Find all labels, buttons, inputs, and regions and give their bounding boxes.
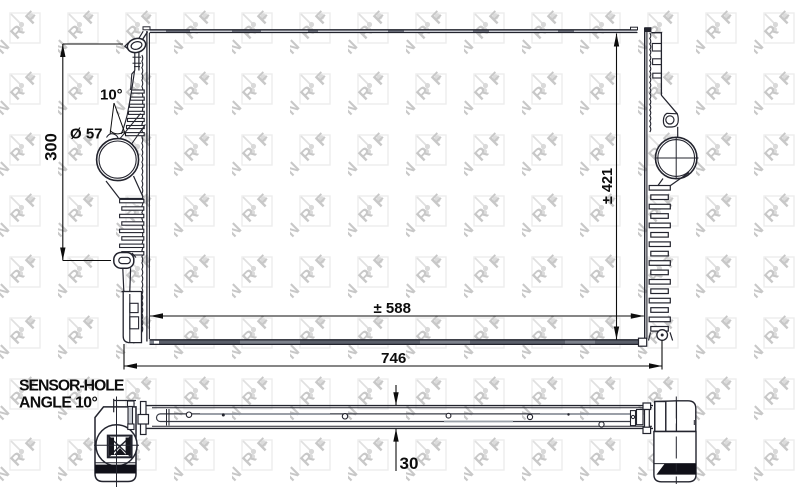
svg-text:300: 300 [43, 133, 61, 161]
svg-text:30: 30 [400, 454, 419, 473]
svg-text:SENSOR-HOLE: SENSOR-HOLE [19, 378, 124, 395]
svg-text:746: 746 [381, 350, 406, 367]
svg-text:± 421: ± 421 [600, 168, 616, 204]
svg-text:10°: 10° [100, 87, 123, 104]
svg-text:Ø 57: Ø 57 [70, 126, 103, 143]
svg-text:ANGLE 10°: ANGLE 10° [19, 395, 97, 412]
svg-text:± 588: ± 588 [374, 300, 411, 317]
